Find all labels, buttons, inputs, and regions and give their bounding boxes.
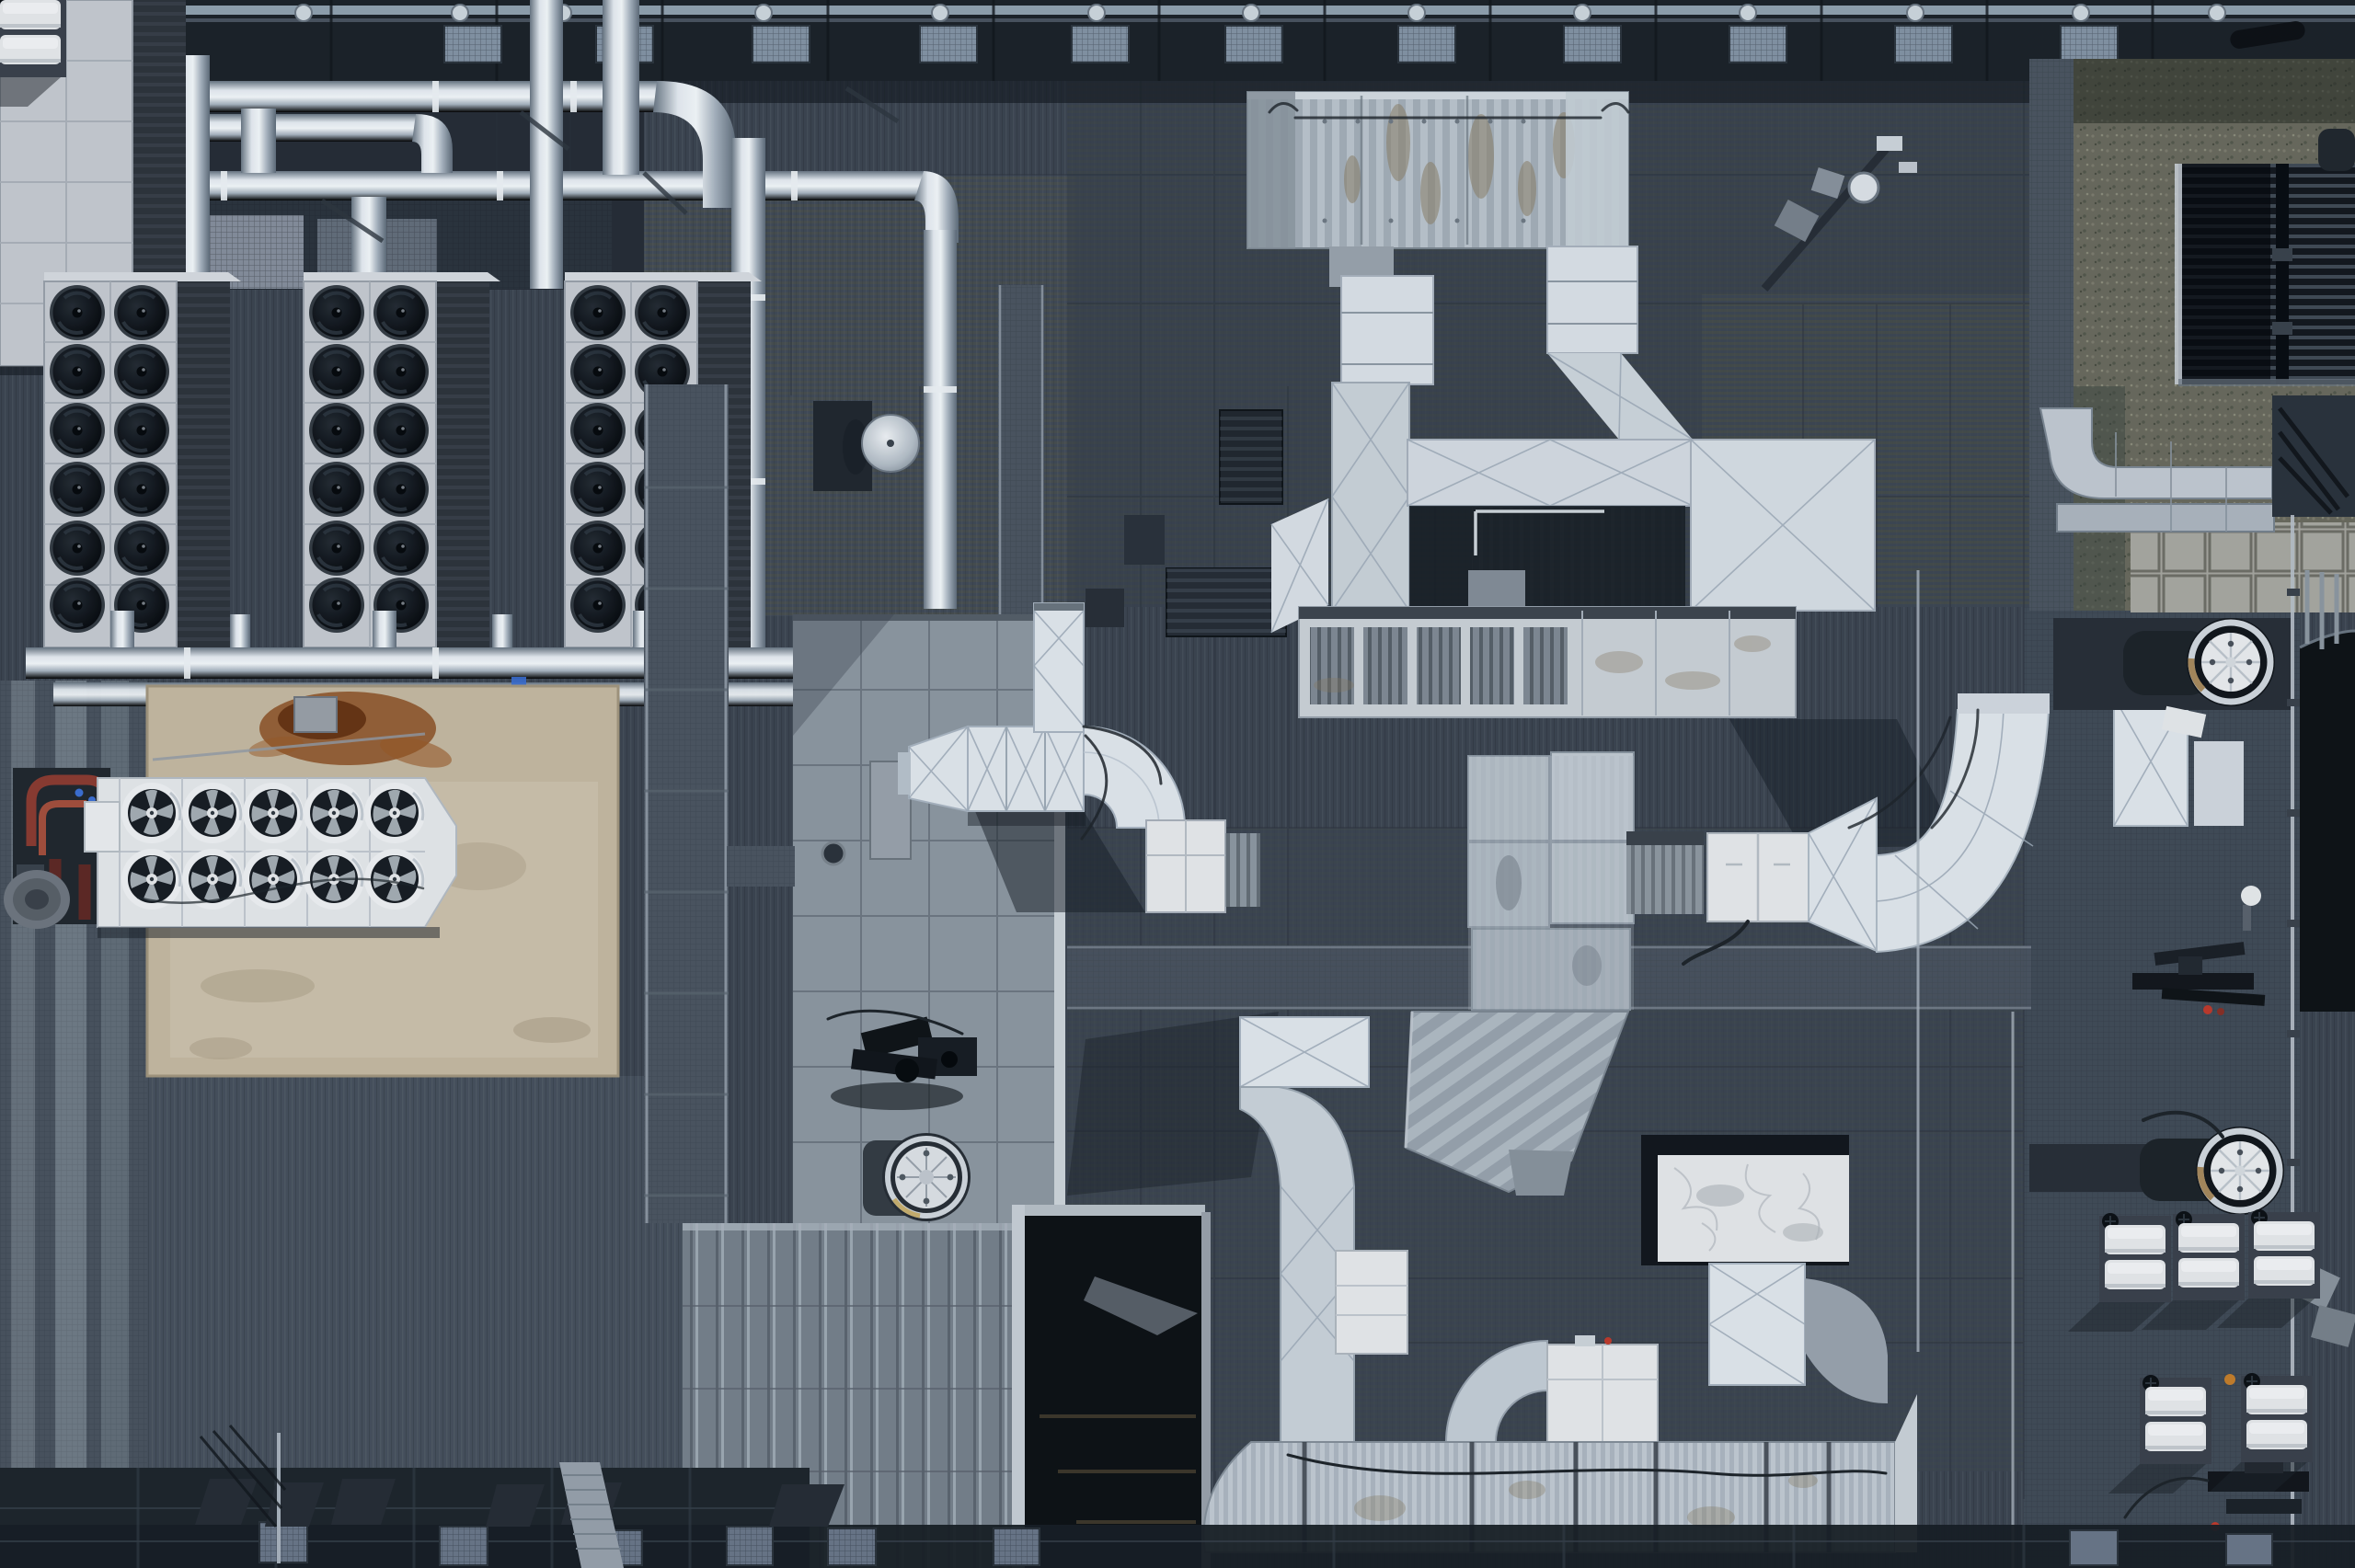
rooftop-aerial-photo [0, 0, 2355, 1568]
color-grade-overlay [0, 0, 2355, 1568]
rooftop-scene-canvas [0, 0, 2355, 1568]
